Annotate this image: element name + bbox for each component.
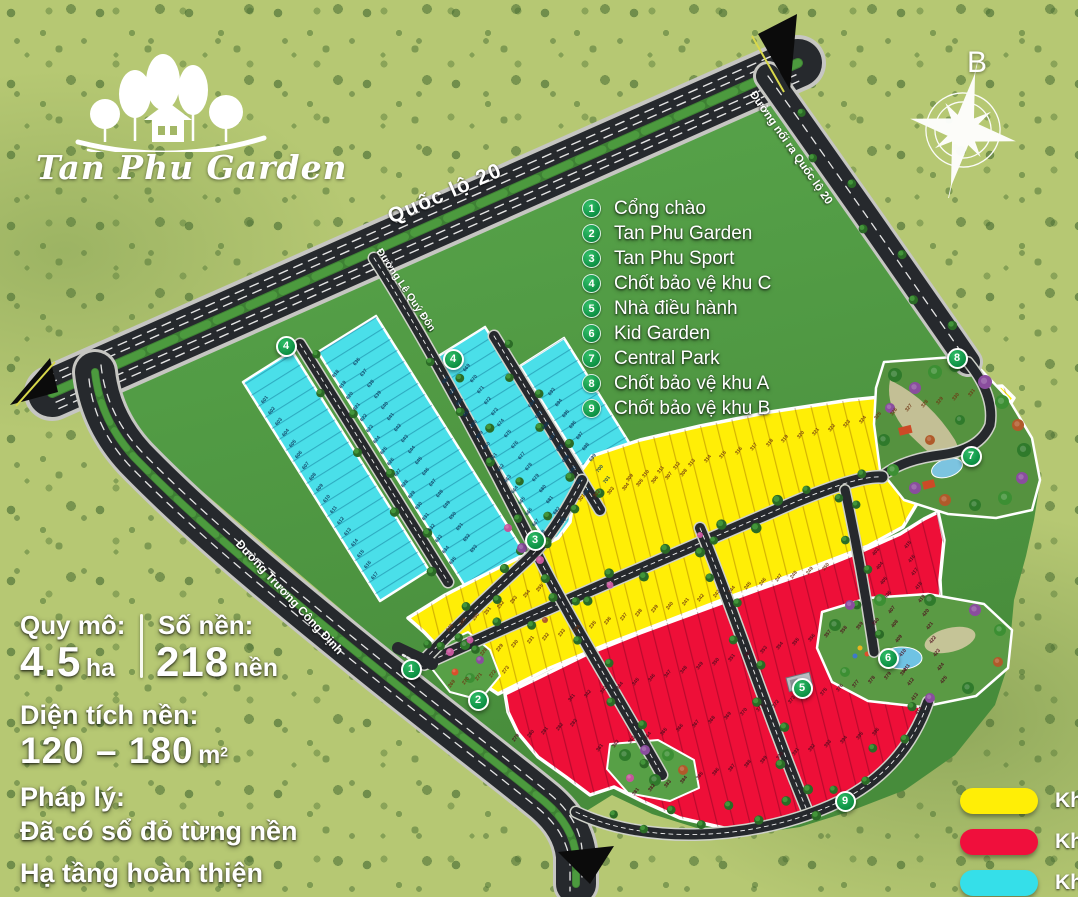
- legend-number-badge: 8: [582, 374, 601, 393]
- map-marker-5: 5: [792, 678, 813, 699]
- area-value: 120 – 180 m2: [20, 730, 228, 772]
- zone-color-pill: [960, 829, 1038, 855]
- map-marker-8: 8: [947, 348, 968, 369]
- legend-number-badge: 7: [582, 349, 601, 368]
- lots-label: Số nền:: [158, 610, 253, 641]
- logo: Tan Phu Garden: [30, 42, 320, 202]
- lots-value: 218 nền: [156, 638, 278, 686]
- map-marker-2: 2: [468, 690, 489, 711]
- logo-trees-house-icon: [30, 42, 320, 152]
- legend-number-badge: 1: [582, 199, 601, 218]
- zone-legend-label: Khu: [1055, 830, 1078, 854]
- zone-color-pill: [960, 870, 1038, 896]
- zone-color-pill: [960, 788, 1038, 814]
- kid-garden: [817, 594, 1012, 707]
- legend-number-badge: 2: [582, 224, 601, 243]
- map-marker-7: 7: [961, 446, 982, 467]
- legend-item-9: 9Chốt bảo vệ khu B: [582, 396, 771, 421]
- scale-label: Quy mô:: [20, 610, 125, 641]
- legend-item-7: 7Central Park: [582, 346, 771, 371]
- zone-legend-row-0: Khu: [960, 788, 1078, 814]
- zone-legend-row-2: Khu: [960, 870, 1078, 896]
- legend-number-badge: 3: [582, 249, 601, 268]
- map-marker-4: 4: [443, 349, 464, 370]
- legend-number-badge: 9: [582, 399, 601, 418]
- zone-legend-row-1: Khu: [960, 829, 1078, 855]
- map-legend: 1Cổng chào2Tan Phu Garden3Tan Phu Sport4…: [582, 196, 771, 421]
- zone-legend-label: Khu: [1055, 871, 1078, 895]
- masterplan-map-canvas: 6016026036046056066076086096106116126136…: [0, 0, 1078, 897]
- infrastructure-note: Hạ tầng hoàn thiện: [20, 858, 263, 889]
- legend-item-label: Tan Phu Garden: [614, 223, 752, 245]
- legend-item-label: Cổng chào: [614, 198, 706, 220]
- legend-item-label: Tan Phu Sport: [614, 248, 734, 270]
- legend-number-badge: 6: [582, 324, 601, 343]
- zone-color-legend: KhuKhuKhu: [960, 788, 1078, 897]
- logo-title: Tan Phu Garden: [36, 148, 348, 187]
- compass-north-label: B: [967, 46, 987, 80]
- legal-label: Pháp lý:: [20, 782, 125, 813]
- map-marker-6: 6: [878, 648, 899, 669]
- map-marker-3: 3: [525, 530, 546, 551]
- legend-item-label: Central Park: [614, 348, 720, 370]
- legend-number-badge: 5: [582, 299, 601, 318]
- legend-item-3: 3Tan Phu Sport: [582, 246, 771, 271]
- map-marker-1: 1: [401, 659, 422, 680]
- legend-item-label: Chốt bảo vệ khu A: [614, 373, 769, 395]
- legend-item-1: 1Cổng chào: [582, 196, 771, 221]
- legend-item-label: Chốt bảo vệ khu C: [614, 273, 771, 295]
- map-marker-9: 9: [835, 791, 856, 812]
- legend-item-label: Chốt bảo vệ khu B: [614, 398, 770, 420]
- legend-item-8: 8Chốt bảo vệ khu A: [582, 371, 771, 396]
- legend-item-5: 5Nhà điều hành: [582, 296, 771, 321]
- legend-item-label: Kid Garden: [614, 323, 710, 345]
- zone-legend-label: Khu: [1055, 789, 1078, 813]
- compass-rose: B: [901, 48, 1041, 198]
- area-label: Diện tích nền:: [20, 700, 199, 731]
- legend-item-label: Nhà điều hành: [614, 298, 738, 320]
- legend-item-2: 2Tan Phu Garden: [582, 221, 771, 246]
- legal-value: Đã có sổ đỏ từng nền: [20, 816, 298, 847]
- legend-item-6: 6Kid Garden: [582, 321, 771, 346]
- map-marker-4: 4: [276, 336, 297, 357]
- scale-value: 4.5 ha: [20, 638, 115, 686]
- legend-number-badge: 4: [582, 274, 601, 293]
- legend-item-4: 4Chốt bảo vệ khu C: [582, 271, 771, 296]
